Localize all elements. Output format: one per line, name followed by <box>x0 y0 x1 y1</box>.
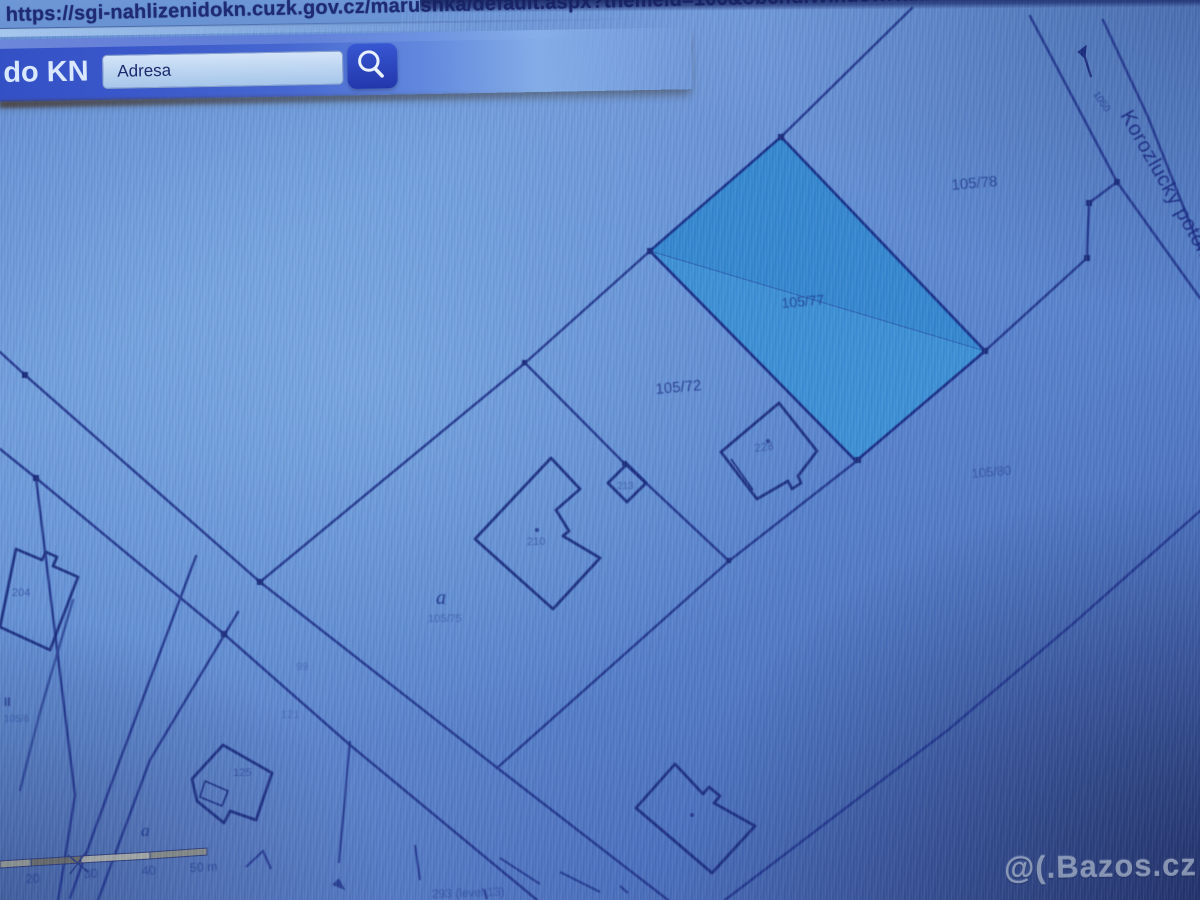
svg-text:210: 210 <box>527 536 545 548</box>
svg-text:20: 20 <box>25 871 40 886</box>
svg-text:105/78: 105/78 <box>951 173 998 194</box>
svg-text:121: 121 <box>281 709 299 721</box>
svg-text:105/6: 105/6 <box>4 714 29 725</box>
svg-text:228: 228 <box>754 440 775 455</box>
svg-text:a: a <box>141 821 150 840</box>
svg-text:99: 99 <box>296 661 308 673</box>
svg-text:50 m: 50 m <box>189 860 217 875</box>
svg-text:125: 125 <box>233 767 251 779</box>
svg-text:30: 30 <box>83 866 98 881</box>
svg-text:293 (level 13): 293 (level 13) <box>432 884 505 900</box>
svg-text:105/80: 105/80 <box>971 463 1012 481</box>
svg-text:II: II <box>4 695 11 709</box>
svg-text:105/72: 105/72 <box>655 377 702 398</box>
svg-text:a: a <box>436 587 446 609</box>
svg-text:213: 213 <box>617 481 634 492</box>
svg-text:40: 40 <box>141 863 156 878</box>
svg-text:204: 204 <box>12 587 30 599</box>
svg-text:105/75: 105/75 <box>428 613 462 625</box>
